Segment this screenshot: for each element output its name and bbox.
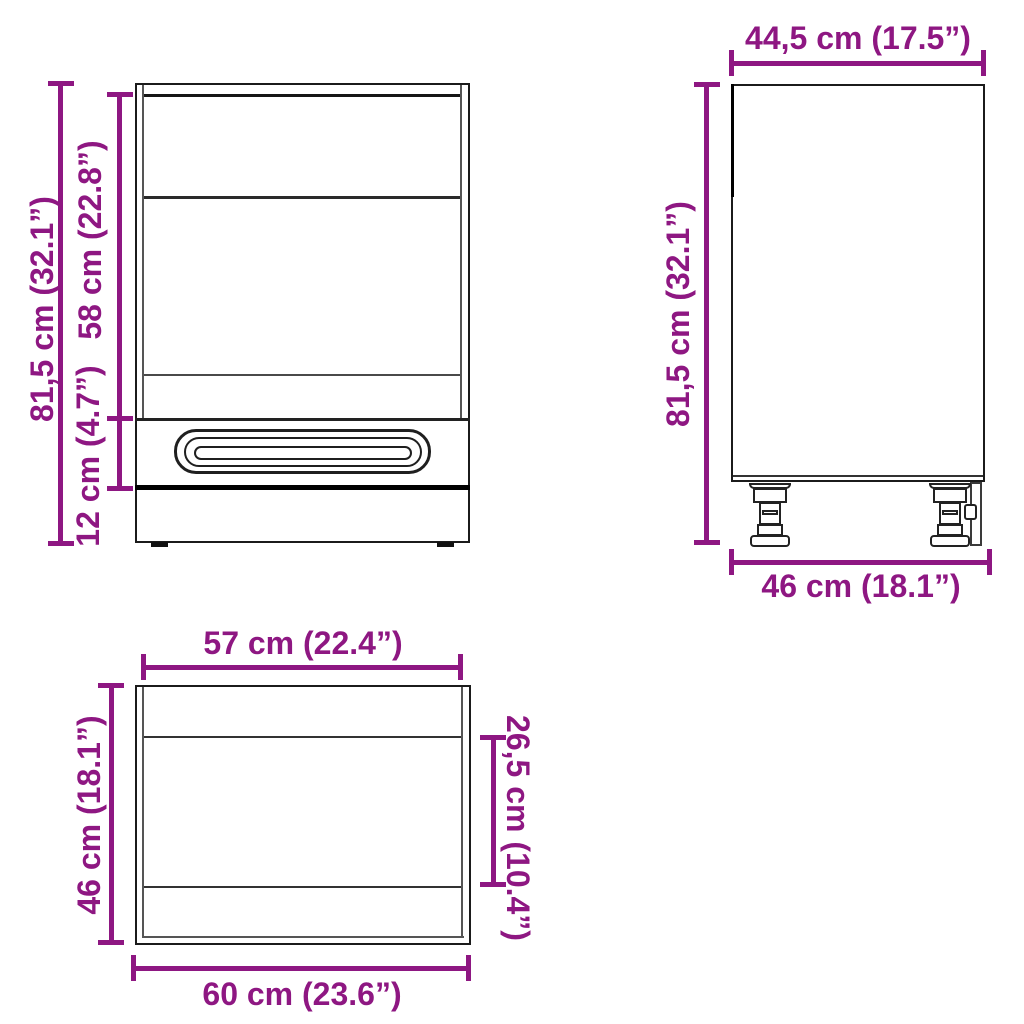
foot-screw-detail <box>762 510 778 515</box>
top-left-stile-line <box>142 687 144 936</box>
side-door-edge-line <box>731 84 734 197</box>
front-carcass-outline <box>135 83 470 543</box>
side-depth-top-dim-label: 44,5 cm (17.5”) <box>745 22 971 54</box>
front-cavity-dim-label: 58 cm (22.8”) <box>74 140 106 339</box>
foot-hex-block <box>753 488 787 503</box>
front-shelf-line <box>144 374 460 376</box>
dim-tick <box>141 654 146 680</box>
front-cavity-dim-line <box>117 94 122 491</box>
top-depth-partial-dim-line <box>491 737 496 887</box>
top-width-outer-dim-line <box>133 966 471 971</box>
dim-tick <box>107 416 133 421</box>
top-width-outer-dim-label: 60 cm (23.6”) <box>202 978 401 1010</box>
front-right-foot-mark <box>437 542 454 547</box>
top-outline <box>135 685 471 945</box>
dim-tick <box>131 955 136 981</box>
dim-tick <box>694 540 720 545</box>
side-bottom-panel-line <box>733 475 983 477</box>
dim-tick <box>98 940 124 945</box>
front-height-dim-label: 81,5 cm (32.1”) <box>26 196 58 422</box>
dim-tick <box>458 654 463 680</box>
side-depth-top-dim-line <box>731 61 985 66</box>
top-back-line <box>144 736 461 738</box>
top-front-edge-line <box>142 936 464 938</box>
foot-hex-block <box>933 488 967 503</box>
top-depth-partial-dim-label: 26,5 cm (10.4”) <box>502 715 534 941</box>
dim-tick <box>729 50 734 76</box>
top-depth-dim-label: 46 cm (18.1”) <box>73 715 105 914</box>
side-height-dim-line <box>704 84 709 545</box>
dim-tick <box>729 549 734 575</box>
drawer-handle-slot <box>194 446 412 460</box>
foot-side-knob <box>964 504 977 520</box>
dimension-diagram: 81,5 cm (32.1”) 58 cm (22.8”) 12 cm (4.7… <box>0 0 1024 1024</box>
front-divider-line <box>144 196 460 199</box>
front-drawer-top-line <box>135 418 470 421</box>
front-left-foot-mark <box>151 542 168 547</box>
dim-tick <box>987 549 992 575</box>
dim-tick <box>981 50 986 76</box>
side-depth-bottom-dim-line <box>731 560 991 565</box>
foot-base <box>930 535 970 547</box>
dim-tick <box>107 486 133 491</box>
dim-tick <box>107 92 133 97</box>
foot-base <box>750 535 790 547</box>
front-right-stile-line <box>460 85 462 419</box>
side-depth-bottom-dim-label: 46 cm (18.1”) <box>761 570 960 602</box>
front-drawer-dim-label: 12 cm (4.7”) <box>72 365 104 546</box>
front-left-stile-line <box>142 85 144 419</box>
adjustable-foot-front <box>748 483 792 549</box>
dim-tick <box>466 955 471 981</box>
top-width-inner-dim-label: 57 cm (22.4”) <box>203 627 402 659</box>
side-carcass-outline <box>731 84 985 482</box>
top-mid-line <box>144 886 461 888</box>
adjustable-foot-back <box>928 483 972 549</box>
top-right-stile-line <box>461 687 463 936</box>
top-width-inner-dim-line <box>143 665 463 670</box>
top-depth-dim-line <box>109 685 114 945</box>
dim-tick <box>48 81 74 86</box>
foot-screw-detail <box>942 510 958 515</box>
front-plinth-line <box>135 485 470 490</box>
front-top-rail-line <box>144 94 460 97</box>
dim-tick <box>98 683 124 688</box>
side-height-dim-label: 81,5 cm (32.1”) <box>662 201 694 427</box>
dim-tick <box>694 82 720 87</box>
